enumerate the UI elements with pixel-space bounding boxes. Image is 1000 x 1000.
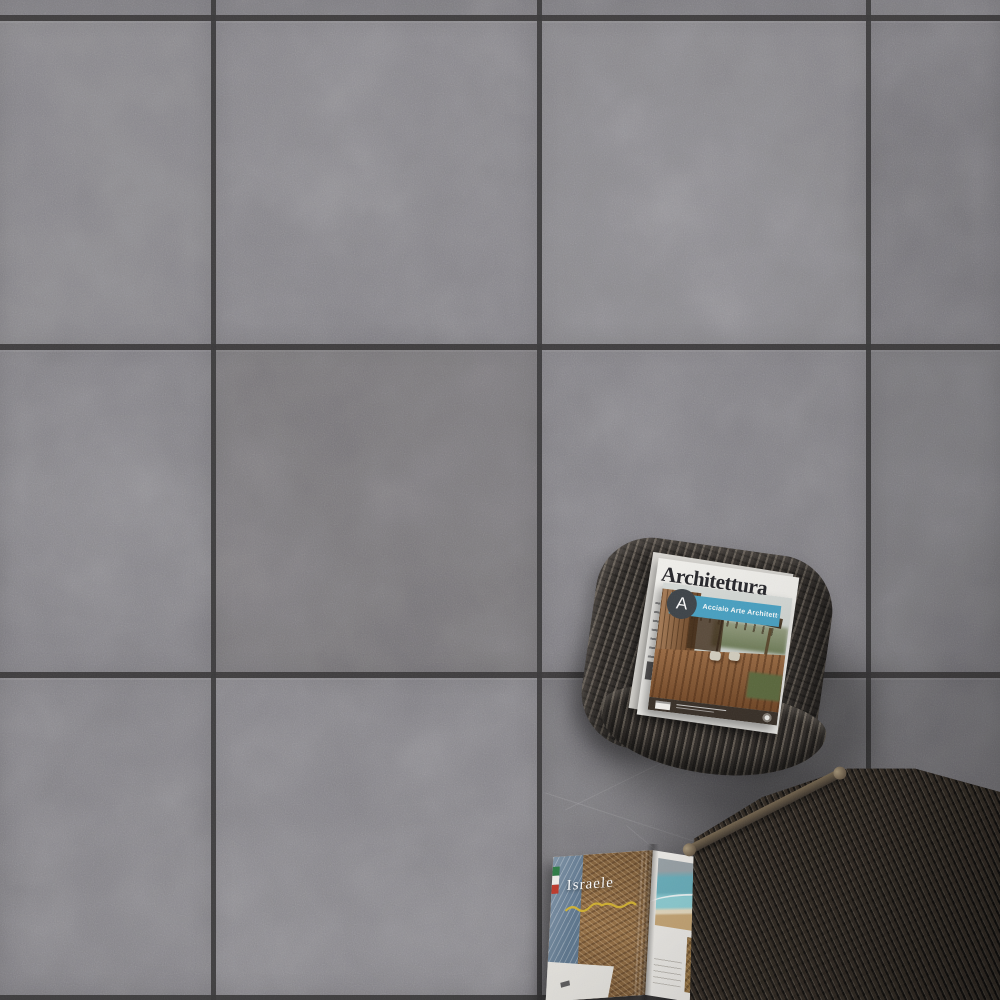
cover-deck-chair — [728, 651, 740, 661]
floor-tile — [211, 673, 537, 995]
floor-tile — [537, 16, 866, 345]
open-magazine-left-page: Israele — [546, 850, 653, 1000]
floor-tile — [537, 0, 866, 16]
grout-line-horizontal — [0, 344, 1000, 350]
cover-grass — [746, 672, 783, 701]
floor-tile — [211, 16, 537, 345]
grout-line-vertical — [211, 0, 216, 1000]
floor-tile — [211, 345, 537, 673]
floor-tile — [866, 345, 1000, 673]
magazine-cover: A Acciaio Arte Architettura — [648, 583, 793, 726]
flag-red — [551, 885, 559, 894]
page-margin — [546, 961, 615, 1000]
article-text-columns — [653, 957, 682, 987]
floor-tile — [866, 16, 1000, 345]
floor-tile — [0, 345, 211, 673]
cover-price-box — [655, 701, 671, 711]
article-headline: Israele — [566, 874, 614, 894]
cover-deck-chair — [709, 651, 721, 661]
grout-line-horizontal — [0, 15, 1000, 21]
floor-tile — [0, 0, 211, 16]
cover-publisher-logo — [762, 713, 772, 723]
floor-tile — [0, 16, 211, 345]
floor-tile — [211, 0, 537, 16]
tile-floor-scene: Architettura A Acciaio Arte Architettura — [0, 0, 1000, 1000]
grout-line-vertical — [537, 0, 542, 1000]
italian-flag-strip — [551, 867, 559, 894]
floor-tile — [866, 0, 1000, 16]
floor-tile — [0, 673, 211, 995]
